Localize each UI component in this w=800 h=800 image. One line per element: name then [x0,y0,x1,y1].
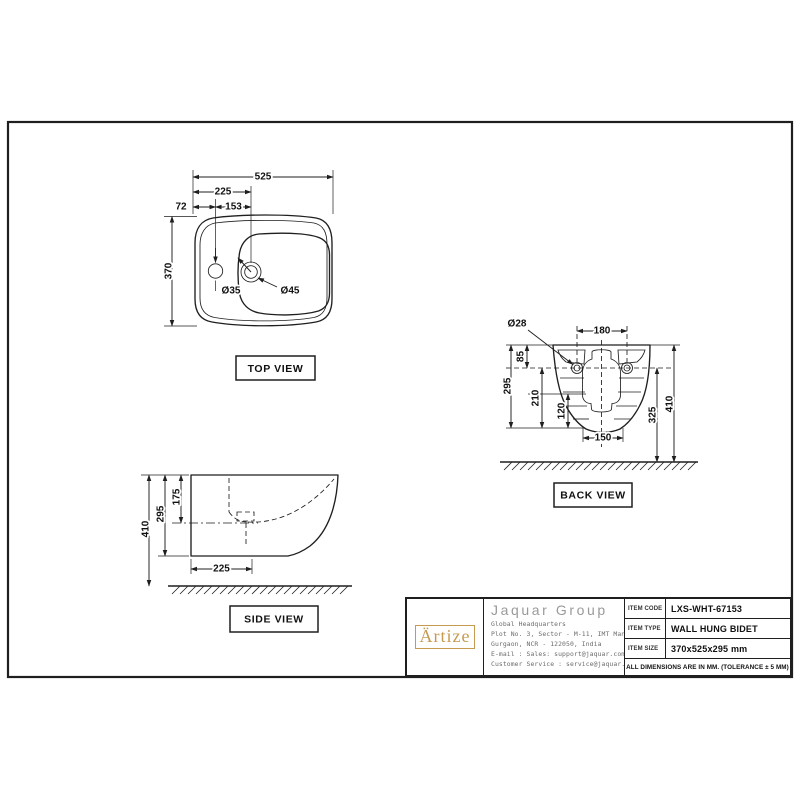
back-view-ground [500,462,698,470]
tolerance-note: ALL DIMENSIONS ARE IN MM. (TOLERANCE ± 5… [625,659,790,675]
top-view-label: TOP VIEW [248,363,304,375]
top-view-label-box: TOP VIEW [236,356,315,380]
item-table: ITEM CODE LXS-WHT-67153 ITEM TYPE WALL H… [625,599,790,675]
title-block: Ärtize Jaquar Group Global Headquarters … [405,597,792,677]
item-size-value: 370x525x295 mm [666,639,790,658]
dim-overall-width: 525 [255,172,272,183]
item-type-row: ITEM TYPE WALL HUNG BIDET [625,619,790,639]
item-code-value: LXS-WHT-67153 [666,599,790,618]
back-view-label-box: BACK VIEW [554,483,632,507]
item-type-label: ITEM TYPE [625,619,666,638]
side-view: 410 295 175 225 SIDE VIEW [141,475,352,632]
dim-left-to-drain: 225 [215,187,232,198]
item-size-label: ITEM SIZE [625,639,666,658]
address-line: Plot No. 3, Sector - M-11, IMT Manesar [491,630,618,640]
dim-floor-to-holes: 325 [648,406,659,423]
dim-body-height-side: 295 [156,505,167,522]
dim-overall-depth: 370 [164,262,175,279]
drawing-canvas: 525 225 72 153 370 Ø35 Ø45 TOP VIEW [0,0,800,800]
item-size-row: ITEM SIZE 370x525x295 mm [625,639,790,659]
item-code-row: ITEM CODE LXS-WHT-67153 [625,599,790,619]
dim-base-depth: 225 [213,564,230,575]
back-view-label: BACK VIEW [560,489,625,501]
artize-logo: Ärtize [415,625,476,650]
address-line: Global Headquarters [491,620,618,630]
dim-hole-dia: Ø28 [508,319,527,330]
brand-logo-cell: Ärtize [407,599,484,675]
dim-holes-to-bottom: 210 [531,389,542,406]
item-code-label: ITEM CODE [625,599,666,618]
dim-top-to-holes: 85 [516,351,527,363]
back-view: 180 Ø28 295 85 210 120 325 410 150 [500,319,698,507]
tap-hole [208,264,222,278]
side-view-ground [168,586,352,594]
company-cell: Jaquar Group Global Headquarters Plot No… [484,599,625,675]
side-view-label-box: SIDE VIEW [230,606,318,632]
dim-top-to-basin: 175 [172,488,183,505]
dim-floor-to-top-back: 410 [665,395,676,412]
dim-tap-to-drain: 153 [225,202,242,213]
dim-floor-to-top-side: 410 [141,520,152,537]
address-line: Gurgaon, NCR - 122050, India [491,640,618,650]
top-view: 525 225 72 153 370 Ø35 Ø45 TOP VIEW [164,170,333,380]
company-address: Global Headquarters Plot No. 3, Sector -… [491,620,618,670]
company-name: Jaquar Group [491,602,618,618]
item-type-value: WALL HUNG BIDET [666,619,790,638]
address-line: E-mail : Sales: support@jaquar.com [491,650,618,660]
dim-left-to-tap: 72 [175,202,187,213]
drawing-sheet: 525 225 72 153 370 Ø35 Ø45 TOP VIEW [0,0,800,800]
dim-drain-dia: Ø45 [281,286,300,297]
back-view-centerlines [506,326,672,447]
dim-outlet-width: 150 [595,433,612,444]
dim-bottom-segment: 120 [557,402,568,419]
address-line: Customer Service : service@jaquar.com [491,660,618,670]
side-view-outline [172,475,338,556]
side-view-dimensions: 410 295 175 225 [141,475,252,586]
top-view-dimensions: 525 225 72 153 370 Ø35 Ø45 [164,170,333,326]
dim-hole-spacing: 180 [594,326,611,337]
dim-tap-hole-dia: Ø35 [222,286,241,297]
dim-body-height-back: 295 [503,377,514,394]
back-view-dimensions: 180 Ø28 295 85 210 120 325 410 150 [503,319,680,462]
side-view-label: SIDE VIEW [244,613,304,625]
